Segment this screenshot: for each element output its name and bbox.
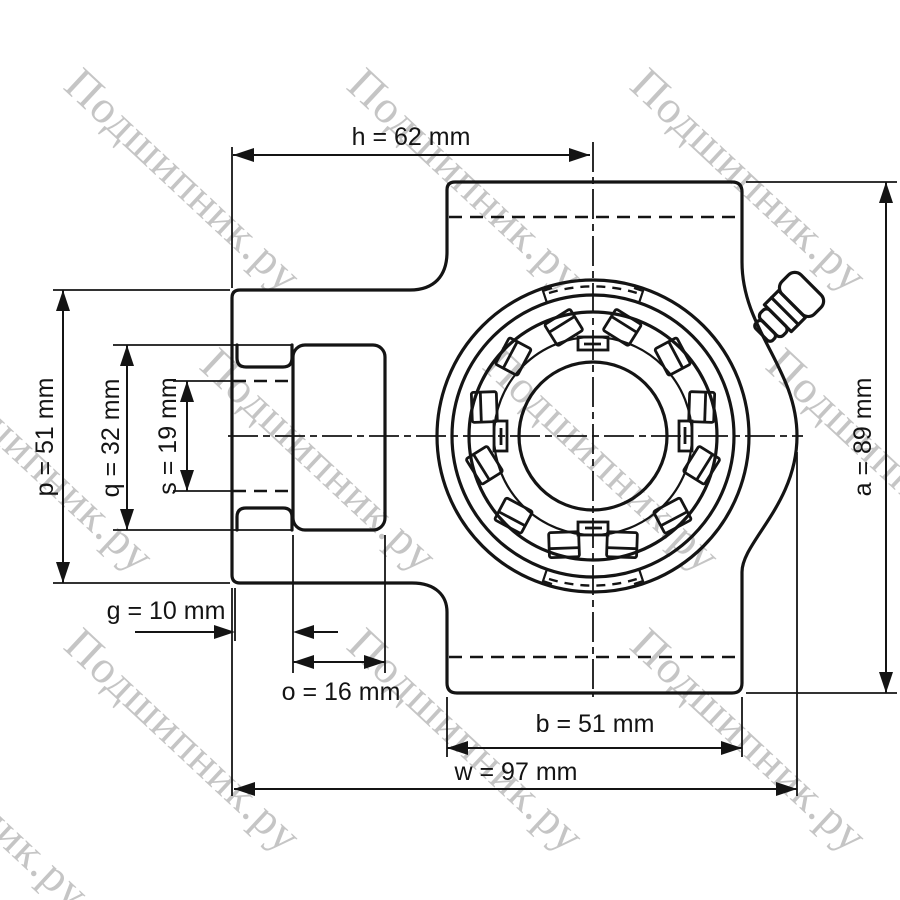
watermark-text: Подшипник.ру [338,58,595,302]
dim-label-q: q = 32 mm [97,379,125,498]
watermark-text: Подшипник.ру [55,618,312,862]
watermark-text: Подшипник.ру [621,58,878,302]
bearing-drawing-svg: Подшипник.ру Подшипник.ру Подшипник.ру П… [0,0,900,900]
dim-label-w: w = 97 mm [454,758,578,786]
watermark-text: Подшипник.ру [621,618,878,862]
dim-label-p: p = 51 mm [31,378,59,497]
dim-label-h: h = 62 mm [352,123,471,151]
dim-label-s: s = 19 mm [154,377,182,494]
grease-fitting [745,269,827,351]
watermark-text: Подшипник.ру [338,618,595,862]
technical-drawing-page: Подшипник.ру Подшипник.ру Подшипник.ру П… [0,0,900,900]
dim-label-o: o = 16 mm [282,678,401,706]
watermark-text: Подшипник.ру [55,58,312,302]
dimension-o: o = 16 mm [282,535,401,706]
watermark-text: Подшипник.ру [0,675,100,900]
slot-tab-bottom [237,508,292,530]
watermark-text: Подшипник.ру [0,338,165,582]
watermark-text: Подшипник.ру [757,338,900,582]
watermark-text: Подшипник.ру [191,338,448,582]
dim-label-a: a = 89 mm [849,378,877,497]
dimension-w: w = 97 mm [232,452,797,796]
dim-label-b: b = 51 mm [536,710,655,738]
dim-label-g: g = 10 mm [107,597,226,625]
